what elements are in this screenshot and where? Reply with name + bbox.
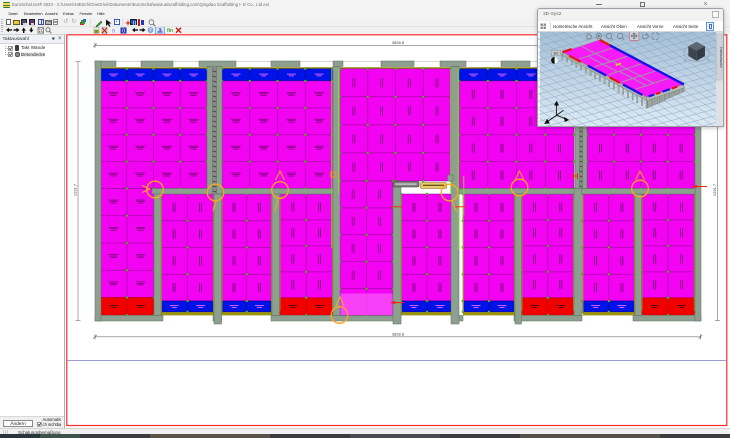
svg-text:km: km xyxy=(554,51,559,55)
svg-text:3828.8: 3828.8 xyxy=(392,332,405,337)
svg-text:1291.7: 1291.7 xyxy=(712,183,717,196)
svg-text:1291.7: 1291.7 xyxy=(73,183,78,196)
svg-text:S: S xyxy=(684,58,686,62)
svg-text:Taktauswahl: Taktauswahl xyxy=(719,46,723,67)
svg-text:3828.8: 3828.8 xyxy=(392,40,405,45)
